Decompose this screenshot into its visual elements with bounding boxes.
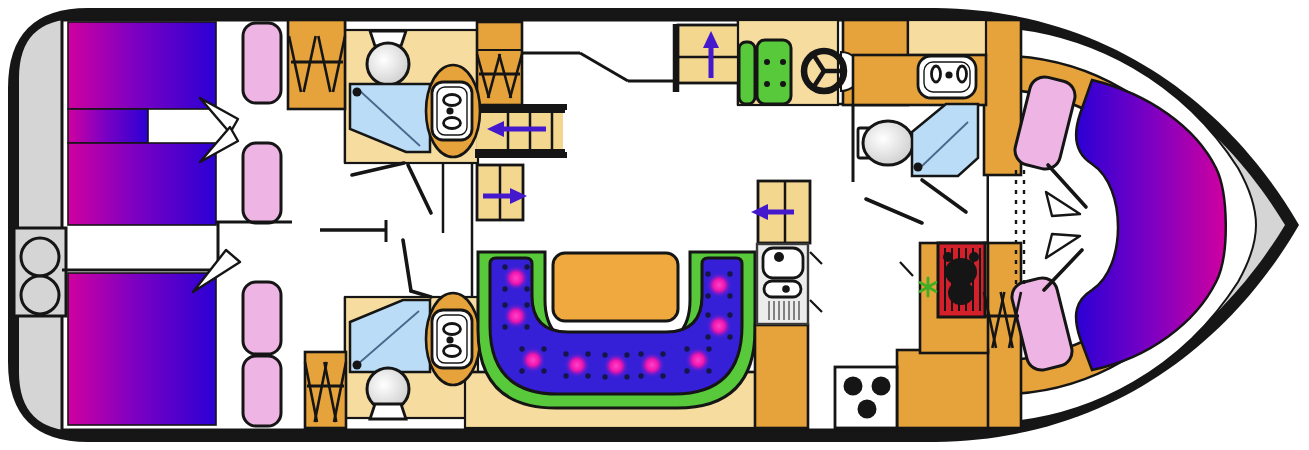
pillow <box>243 282 281 354</box>
stove-burner <box>872 377 891 396</box>
boat-floor-plan <box>0 0 1309 450</box>
berth-mattress <box>68 273 216 425</box>
hanging-locker <box>477 22 522 105</box>
stern-gas-bottles <box>14 228 66 316</box>
toilet-cistern <box>370 404 406 419</box>
helm-seat-icon <box>757 40 791 104</box>
galley-sink-icon <box>757 244 808 324</box>
stove-burner <box>858 400 877 419</box>
berth-mattress <box>68 143 216 225</box>
salon-table <box>553 253 678 321</box>
stove-icon <box>835 367 897 428</box>
heater-grille-icon <box>938 243 985 317</box>
toilet-icon <box>863 121 913 165</box>
pillow <box>243 23 281 103</box>
berth-infill <box>68 109 148 143</box>
pillow <box>243 356 281 426</box>
galley-counter <box>897 350 988 428</box>
helm-seat-back <box>739 42 755 104</box>
toilet-icon <box>367 43 409 85</box>
stove-burner <box>844 377 863 396</box>
pillow <box>243 143 281 223</box>
dash-shelf <box>908 20 986 55</box>
aft-double-cabin <box>68 273 281 426</box>
hanging-locker <box>288 20 345 109</box>
floor-plan-svg <box>0 0 1309 450</box>
berth-mattress <box>68 22 216 109</box>
galley-counter <box>755 325 808 428</box>
